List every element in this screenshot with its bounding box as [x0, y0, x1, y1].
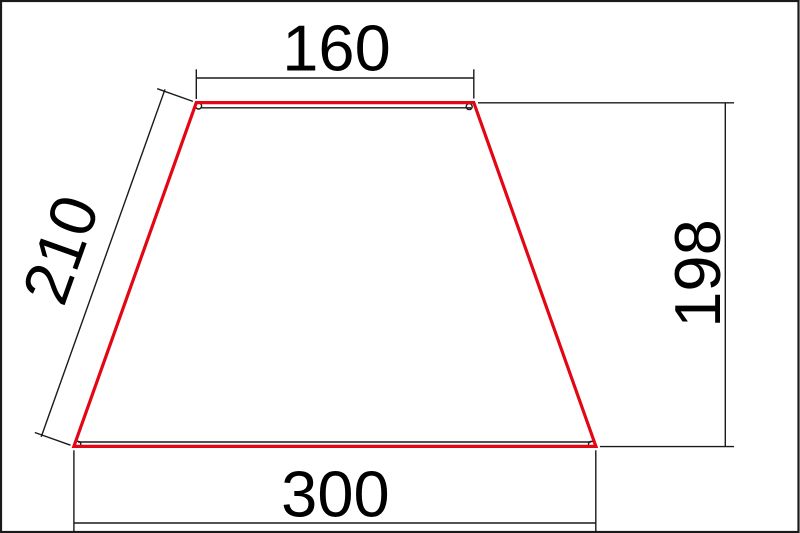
svg-text:198: 198 — [661, 219, 734, 327]
svg-text:300: 300 — [281, 458, 389, 531]
svg-text:160: 160 — [282, 12, 390, 85]
